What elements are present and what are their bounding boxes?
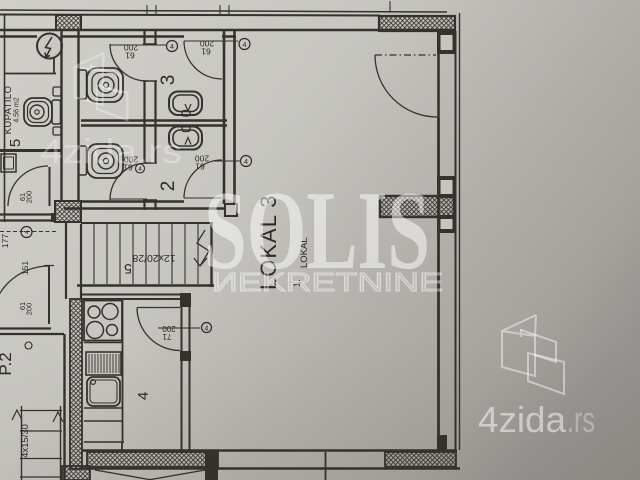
svg-text:151: 151 (20, 261, 30, 275)
svg-text:4: 4 (24, 230, 31, 234)
svg-text:200: 200 (25, 191, 34, 204)
svg-text:4x15/30: 4x15/30 (20, 424, 31, 458)
svg-text:4zida.rs: 4zida.rs (40, 133, 182, 171)
svg-text:.rs: .rs (567, 399, 595, 440)
svg-text:4: 4 (135, 392, 152, 400)
svg-text:P.2: P.2 (0, 352, 15, 375)
svg-text:ИEKRETNINE: ИEKRETNINE (212, 267, 443, 297)
svg-text:4.56 m2: 4.56 m2 (14, 97, 21, 122)
svg-text:4zida: 4zida (478, 399, 567, 440)
svg-text:4: 4 (244, 157, 248, 166)
svg-text:177: 177 (0, 234, 10, 248)
svg-text:2: 2 (158, 181, 179, 192)
svg-text:61: 61 (201, 47, 211, 57)
svg-text:61: 61 (125, 51, 135, 61)
svg-text:12x20/28: 12x20/28 (132, 252, 175, 264)
svg-text:5: 5 (7, 139, 24, 147)
svg-text:3: 3 (158, 75, 179, 86)
svg-text:71: 71 (162, 332, 171, 341)
svg-text:200: 200 (162, 324, 176, 333)
svg-text:KUPATILO: KUPATILO (3, 86, 14, 135)
svg-text:200: 200 (25, 303, 34, 316)
svg-text:4: 4 (205, 326, 209, 333)
svg-text:5: 5 (124, 261, 132, 277)
svg-text:4: 4 (170, 42, 174, 51)
svg-text:4: 4 (242, 40, 246, 49)
